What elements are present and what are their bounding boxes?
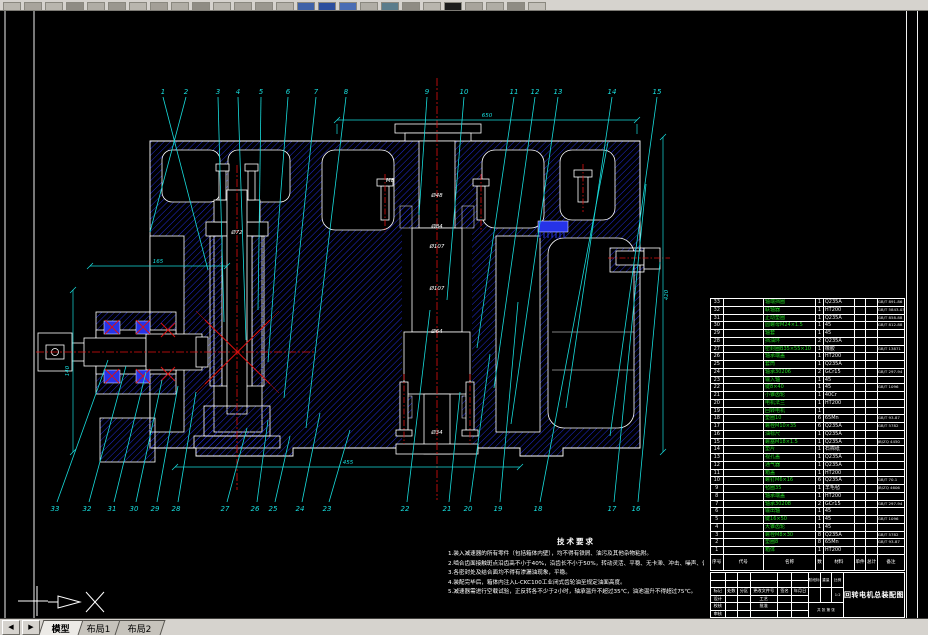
bom-cell: HT200 bbox=[824, 547, 855, 554]
bom-cell bbox=[855, 330, 867, 337]
bom-cell: 29 bbox=[711, 330, 724, 337]
tab-nav: ◀▶ bbox=[2, 620, 40, 635]
bom-cell: GB/T 858-88 bbox=[878, 315, 904, 322]
table-row: 14垫片1石棉纸 bbox=[711, 446, 904, 454]
table-row: 11箱盖1HT200 bbox=[711, 470, 904, 478]
toolbar-icon[interactable] bbox=[213, 2, 231, 10]
table-row: 15螺塞M18×1.51Q235AJB/ZQ 4450 bbox=[711, 439, 904, 447]
titleblock-cell bbox=[726, 596, 739, 603]
bom-cell: 19 bbox=[711, 408, 724, 415]
bom-cell: 密封圈B35×55×10 bbox=[764, 346, 816, 353]
toolbar-icon[interactable] bbox=[297, 2, 315, 10]
bom-cell: 1 bbox=[816, 392, 824, 399]
svg-text:15: 15 bbox=[653, 88, 662, 96]
toolbar-icon[interactable] bbox=[276, 2, 294, 10]
bom-cell bbox=[724, 485, 765, 492]
toolbar-icon[interactable] bbox=[528, 2, 546, 10]
titleblock-cell bbox=[778, 611, 793, 618]
toolbar-icon[interactable] bbox=[255, 2, 273, 10]
toolbar[interactable] bbox=[0, 0, 928, 11]
bom-cell bbox=[855, 346, 867, 353]
bom-cell bbox=[878, 470, 904, 477]
bom-cell bbox=[855, 431, 867, 438]
bom-header-cell: 名称 bbox=[764, 555, 816, 570]
title-block: 标记处数分区更改文件号签名年月日设计工艺校核批准审核 阶段标记 重量 比例 1:… bbox=[710, 572, 905, 618]
bom-cell bbox=[724, 547, 765, 554]
tab-label: 模型 bbox=[52, 622, 70, 635]
bom-cell bbox=[724, 501, 765, 508]
bom-cell: 垫圈8 bbox=[764, 539, 816, 546]
bom-cell: Q235A bbox=[824, 454, 855, 461]
bom-cell: 21 bbox=[711, 392, 724, 399]
bom-table: 33轴端挡圈1Q235AGB/T 891-8632联轴器1HT200GB/T 5… bbox=[710, 298, 905, 571]
bom-cell bbox=[866, 384, 878, 391]
titleblock-cell bbox=[726, 603, 739, 610]
svg-text:455: 455 bbox=[343, 460, 354, 466]
bom-cell: 28 bbox=[711, 338, 724, 345]
bom-cell bbox=[855, 547, 867, 554]
bom-cell: 7 bbox=[711, 501, 724, 508]
bom-cell bbox=[878, 454, 904, 461]
bom-cell: 键16×50 bbox=[764, 516, 816, 523]
titleblock-cell bbox=[711, 581, 726, 588]
table-row: 2垫圈8865MnGB/T 93-87 bbox=[711, 539, 904, 547]
titleblock-cell bbox=[792, 603, 807, 610]
table-row: 3螺栓M8×308Q235AGB/T 5782 bbox=[711, 532, 904, 540]
bom-cell: GB/T 297-94 bbox=[878, 369, 904, 376]
table-row: 7轴承302082GCr15GB/T 297-94 bbox=[711, 501, 904, 509]
tab-label: 布局1 bbox=[87, 622, 111, 635]
bom-cell: 2 bbox=[816, 369, 824, 376]
table-row: 8轴承端盖1HT200 bbox=[711, 493, 904, 501]
bom-cell bbox=[866, 547, 878, 554]
bom-body: 33轴端挡圈1Q235AGB/T 891-8632联轴器1HT200GB/T 5… bbox=[711, 299, 904, 555]
tech-notes-title: 技术要求 bbox=[448, 536, 704, 547]
bom-header-cell: 备注 bbox=[878, 555, 904, 570]
tab-label: 布局2 bbox=[128, 622, 152, 635]
bom-cell: 轴承端盖 bbox=[764, 353, 816, 360]
bom-header-cell: 代号 bbox=[724, 555, 765, 570]
bom-cell bbox=[855, 353, 867, 360]
bom-cell bbox=[724, 524, 765, 531]
tab-nav-button[interactable]: ◀ bbox=[2, 620, 20, 635]
table-row: 10螺钉M6×166Q235AGB/T 70.1 bbox=[711, 477, 904, 485]
titleblock-cell: 处数 bbox=[726, 588, 739, 595]
bom-cell bbox=[855, 462, 867, 469]
bom-cell: 40Cr bbox=[824, 392, 855, 399]
svg-text:29: 29 bbox=[151, 505, 160, 513]
bom-cell: 螺栓M8×30 bbox=[764, 532, 816, 539]
bom-cell: Q235A bbox=[824, 423, 855, 430]
svg-text:9: 9 bbox=[425, 88, 430, 96]
tab-布局2[interactable]: 布局2 bbox=[114, 620, 165, 635]
bom-cell bbox=[724, 346, 765, 353]
tab-nav-button[interactable]: ▶ bbox=[22, 620, 40, 635]
bom-cell: 11 bbox=[711, 470, 724, 477]
titleblock-cell bbox=[738, 581, 751, 588]
bom-cell: 30 bbox=[711, 322, 724, 329]
bom-cell: 14 bbox=[711, 446, 724, 453]
bom-cell bbox=[855, 307, 867, 314]
bom-cell: 螺塞M18×1.5 bbox=[764, 439, 816, 446]
titleblock-cell bbox=[751, 573, 778, 580]
bom-cell: 1 bbox=[816, 439, 824, 446]
bom-cell bbox=[866, 415, 878, 422]
bom-cell: HT200 bbox=[824, 400, 855, 407]
bom-cell bbox=[855, 361, 867, 368]
note-line: 4.装配完毕后，箱体内注入L-CKC100工业闭式齿轮油至规定油面高度。 bbox=[448, 579, 704, 589]
table-row: 21小锥齿轮140Cr bbox=[711, 392, 904, 400]
bom-cell bbox=[724, 400, 765, 407]
bom-cell: GCr15 bbox=[824, 369, 855, 376]
toolbar-icon[interactable] bbox=[507, 2, 525, 10]
bom-cell: Q235A bbox=[824, 532, 855, 539]
bom-cell: 1 bbox=[816, 508, 824, 515]
bom-cell: 20 bbox=[711, 400, 724, 407]
svg-text:12: 12 bbox=[531, 88, 540, 96]
bom-cell: 大锥齿轮 bbox=[764, 524, 816, 531]
tab-strip: 模型布局1布局2 bbox=[46, 619, 162, 635]
svg-text:20: 20 bbox=[464, 505, 473, 513]
bom-cell: 轴套 bbox=[764, 330, 816, 337]
svg-text:650: 650 bbox=[482, 113, 493, 119]
table-row: 19回转电机1 bbox=[711, 408, 904, 416]
titleblock-cell bbox=[751, 611, 778, 618]
titleblock-cell bbox=[726, 611, 739, 618]
toolbar-icon[interactable] bbox=[318, 2, 336, 10]
bom-cell: 1 bbox=[816, 330, 824, 337]
table-row: 12通气器1Q235A bbox=[711, 462, 904, 470]
bom-cell bbox=[724, 508, 765, 515]
bom-cell: 8 bbox=[711, 493, 724, 500]
titleblock-cell bbox=[792, 581, 807, 588]
sheet-count: 共 张 第 张 bbox=[809, 603, 843, 617]
bom-cell: Q235A bbox=[824, 462, 855, 469]
table-row: 1箱体1HT200 bbox=[711, 547, 904, 555]
table-row: 18垫圈10665MnGB/T 93-87 bbox=[711, 415, 904, 423]
bom-cell bbox=[878, 361, 904, 368]
bom-cell bbox=[866, 346, 878, 353]
bom-cell: GB/T 1096 bbox=[878, 384, 904, 391]
titleblock-cell: 工艺 bbox=[751, 596, 778, 603]
table-row: 31止动垫圈1Q235AGB/T 858-88 bbox=[711, 315, 904, 323]
bom-cell: Q235A bbox=[824, 338, 855, 345]
bom-cell bbox=[866, 361, 878, 368]
bom-cell bbox=[866, 470, 878, 477]
titleblock-cell bbox=[792, 573, 807, 580]
svg-text:1: 1 bbox=[161, 88, 165, 96]
bom-cell: Q235A bbox=[824, 439, 855, 446]
bom-cell: 轴端挡圈 bbox=[764, 299, 816, 306]
bom-cell: 轴承30206 bbox=[764, 369, 816, 376]
toolbar-icon[interactable] bbox=[150, 2, 168, 10]
bom-cell bbox=[866, 477, 878, 484]
titleblock-cell: 设计 bbox=[711, 596, 726, 603]
svg-text:22: 22 bbox=[401, 505, 410, 513]
bom-cell bbox=[878, 462, 904, 469]
bom-cell: 箱盖 bbox=[764, 470, 816, 477]
bom-cell: GB/T 93-87 bbox=[878, 539, 904, 546]
titleblock-cell: 更改文件号 bbox=[751, 588, 778, 595]
bom-header: 序号代号名称数量材料单件总计备注 bbox=[711, 555, 904, 570]
bom-cell: 视孔盖 bbox=[764, 454, 816, 461]
scale-label: 比例 bbox=[832, 573, 843, 587]
layout-tabbar: ◀▶ 模型布局1布局2 bbox=[0, 618, 928, 635]
bom-cell: 45 bbox=[824, 516, 855, 523]
bom-cell bbox=[866, 532, 878, 539]
bom-cell: Q235A bbox=[824, 431, 855, 438]
bom-cell bbox=[855, 501, 867, 508]
toolbar-icon[interactable] bbox=[171, 2, 189, 10]
note-line: 5.减速器需进行空载试验，正反转各不少于2小时，轴承温升不超过35℃，油池温升不… bbox=[448, 588, 704, 598]
svg-text:17: 17 bbox=[608, 505, 617, 513]
bom-cell: 5 bbox=[711, 516, 724, 523]
titleblock-cell bbox=[792, 596, 807, 603]
bom-cell bbox=[866, 431, 878, 438]
bom-cell: 45 bbox=[824, 322, 855, 329]
table-row: 5键16×50145GB/T 1096 bbox=[711, 516, 904, 524]
bom-cell: 8 bbox=[816, 539, 824, 546]
bom-cell bbox=[724, 477, 765, 484]
bom-cell bbox=[724, 539, 765, 546]
bom-cell bbox=[866, 439, 878, 446]
bom-cell: 键8×40 bbox=[764, 384, 816, 391]
toolbar-icon[interactable] bbox=[486, 2, 504, 10]
bom-cell: 6 bbox=[816, 423, 824, 430]
bom-cell: 24 bbox=[711, 369, 724, 376]
bom-cell: 1 bbox=[816, 346, 824, 353]
titleblock-cell bbox=[792, 611, 807, 618]
toolbar-icon[interactable] bbox=[3, 2, 21, 10]
tech-notes-lines: 1.装入减速器的所有零件（包括箱体内壁），均不得有铁屑、油污及其他杂物粘附。2.… bbox=[448, 550, 704, 598]
bom-cell: 箱体 bbox=[764, 547, 816, 554]
toolbar-icon[interactable] bbox=[360, 2, 378, 10]
svg-text:140: 140 bbox=[65, 365, 71, 376]
bom-cell bbox=[855, 423, 867, 430]
svg-text:23: 23 bbox=[323, 505, 332, 513]
svg-text:6: 6 bbox=[286, 88, 291, 96]
note-line: 1.装入减速器的所有零件（包括箱体内壁），均不得有铁屑、油污及其他杂物粘附。 bbox=[448, 550, 704, 560]
bom-cell: 3 bbox=[711, 532, 724, 539]
gearbox-housing bbox=[100, 141, 644, 462]
toolbar-icon[interactable] bbox=[87, 2, 105, 10]
bom-cell bbox=[866, 330, 878, 337]
bom-header-cell: 数量 bbox=[816, 555, 824, 570]
bom-cell bbox=[724, 353, 765, 360]
bom-cell bbox=[855, 377, 867, 384]
toolbar-icon[interactable] bbox=[66, 2, 84, 10]
bom-cell bbox=[724, 322, 765, 329]
svg-text:26: 26 bbox=[251, 505, 260, 513]
bom-cell bbox=[866, 454, 878, 461]
svg-text:25: 25 bbox=[269, 505, 278, 513]
titleblock-cell bbox=[711, 573, 726, 580]
bom-cell bbox=[866, 315, 878, 322]
bom-cell bbox=[855, 485, 867, 492]
svg-text:2: 2 bbox=[184, 88, 189, 96]
table-row: 16油标尺1Q235A bbox=[711, 431, 904, 439]
bom-cell: GB/T 13871 bbox=[878, 346, 904, 353]
bom-cell bbox=[866, 338, 878, 345]
bom-cell: 1 bbox=[816, 377, 824, 384]
bom-cell bbox=[855, 493, 867, 500]
bom-cell: 输出轴 bbox=[764, 508, 816, 515]
bom-cell: HT200 bbox=[824, 493, 855, 500]
bom-cell: 输入轴 bbox=[764, 377, 816, 384]
svg-text:165: 165 bbox=[153, 259, 164, 265]
bom-cell bbox=[855, 338, 867, 345]
bom-cell bbox=[724, 439, 765, 446]
toolbar-icon[interactable] bbox=[465, 2, 483, 10]
titleblock-cell: 批准 bbox=[751, 603, 778, 610]
toolbar-icon[interactable] bbox=[129, 2, 147, 10]
toolbar-icon[interactable] bbox=[381, 2, 399, 10]
bom-cell bbox=[878, 493, 904, 500]
bom-cell bbox=[724, 408, 765, 415]
bom-cell bbox=[724, 454, 765, 461]
bom-cell: 螺栓M10×35 bbox=[764, 423, 816, 430]
table-row: 22键8×40145GB/T 1096 bbox=[711, 384, 904, 392]
table-row: 28挡油环2Q235A bbox=[711, 338, 904, 346]
toolbar-icon[interactable] bbox=[423, 2, 441, 10]
svg-text:13: 13 bbox=[554, 88, 563, 96]
bom-cell bbox=[724, 384, 765, 391]
svg-text:420: 420 bbox=[664, 289, 670, 300]
bom-cell: 17 bbox=[711, 423, 724, 430]
bom-cell bbox=[724, 462, 765, 469]
bom-cell bbox=[866, 539, 878, 546]
table-row: 23输入轴145 bbox=[711, 377, 904, 385]
titleblock-cell bbox=[778, 596, 793, 603]
table-row: 26轴承端盖1HT200 bbox=[711, 353, 904, 361]
toolbar-icon[interactable] bbox=[402, 2, 420, 10]
bom-cell: 1 bbox=[816, 493, 824, 500]
titleblock-cell bbox=[751, 581, 778, 588]
toolbar-icon[interactable] bbox=[108, 2, 126, 10]
svg-text:19: 19 bbox=[494, 505, 503, 513]
bom-cell bbox=[866, 485, 878, 492]
bom-cell bbox=[855, 470, 867, 477]
bom-cell bbox=[724, 423, 765, 430]
bom-cell: 1 bbox=[816, 470, 824, 477]
toolbar-icon[interactable] bbox=[45, 2, 63, 10]
svg-text:28: 28 bbox=[172, 505, 181, 513]
table-row: 25套筒1Q235A bbox=[711, 361, 904, 369]
bom-cell bbox=[866, 377, 878, 384]
toolbar-icon[interactable] bbox=[24, 2, 42, 10]
bom-cell: 65Mn bbox=[824, 415, 855, 422]
svg-text:Ø48: Ø48 bbox=[430, 192, 443, 199]
bom-cell: 1 bbox=[816, 322, 824, 329]
bom-cell bbox=[878, 524, 904, 531]
bom-cell bbox=[866, 524, 878, 531]
bom-cell: 65Mn bbox=[824, 539, 855, 546]
bom-header-cell: 总计 bbox=[866, 555, 878, 570]
bom-cell: 1 bbox=[816, 315, 824, 322]
bom-cell: 1 bbox=[816, 454, 824, 461]
bom-cell bbox=[878, 338, 904, 345]
bom-cell: 垫圈10 bbox=[764, 415, 816, 422]
bom-cell bbox=[855, 400, 867, 407]
bom-cell: 1 bbox=[816, 307, 824, 314]
bom-cell bbox=[855, 299, 867, 306]
bom-cell bbox=[878, 353, 904, 360]
bom-cell bbox=[878, 400, 904, 407]
bom-cell: 45 bbox=[824, 508, 855, 515]
bom-cell: 4 bbox=[711, 524, 724, 531]
bom-cell bbox=[724, 315, 765, 322]
svg-text:10: 10 bbox=[460, 88, 469, 96]
bom-cell bbox=[855, 454, 867, 461]
bom-cell bbox=[866, 516, 878, 523]
bom-cell: 1 bbox=[711, 547, 724, 554]
svg-text:3: 3 bbox=[216, 88, 220, 96]
bom-cell bbox=[855, 524, 867, 531]
svg-text:18: 18 bbox=[534, 505, 543, 513]
bom-cell: Q235A bbox=[824, 299, 855, 306]
bom-cell bbox=[855, 384, 867, 391]
bom-cell: 止动垫圈 bbox=[764, 315, 816, 322]
bom-cell: 1 bbox=[816, 485, 824, 492]
bom-header-cell: 单件 bbox=[855, 555, 867, 570]
bom-cell: 1 bbox=[816, 400, 824, 407]
bom-cell bbox=[724, 493, 765, 500]
table-row: 29轴套145 bbox=[711, 330, 904, 338]
toolbar-icon[interactable] bbox=[192, 2, 210, 10]
drawing-title: 回转电机总装配图 bbox=[844, 590, 904, 600]
bom-cell: 33 bbox=[711, 299, 724, 306]
bom-cell bbox=[855, 322, 867, 329]
bom-cell bbox=[855, 315, 867, 322]
svg-text:16: 16 bbox=[632, 505, 641, 513]
bom-cell: HT200 bbox=[824, 470, 855, 477]
bom-cell: 10 bbox=[711, 477, 724, 484]
svg-text:7: 7 bbox=[314, 88, 319, 96]
bom-cell: 2 bbox=[816, 501, 824, 508]
toolbar-icon[interactable] bbox=[339, 2, 357, 10]
titleblock-cell bbox=[778, 581, 793, 588]
bom-cell: GB/T 1096 bbox=[878, 516, 904, 523]
bom-cell: 垫片 bbox=[764, 446, 816, 453]
bom-cell: 1 bbox=[816, 431, 824, 438]
toolbar-icons bbox=[3, 2, 546, 10]
tab-模型[interactable]: 模型 bbox=[39, 620, 84, 635]
bom-cell bbox=[878, 377, 904, 384]
bom-cell: 27 bbox=[711, 346, 724, 353]
titleblock-cell bbox=[726, 581, 739, 588]
bom-cell: 45 bbox=[824, 524, 855, 531]
bom-cell: 1 bbox=[816, 446, 824, 453]
bom-cell: 6 bbox=[816, 477, 824, 484]
bom-cell: 6 bbox=[816, 415, 824, 422]
bom-cell: HT200 bbox=[824, 307, 855, 314]
bom-cell: 1 bbox=[816, 408, 824, 415]
titleblock-cell bbox=[738, 603, 751, 610]
toolbar-icon[interactable] bbox=[444, 2, 462, 10]
bom-cell: 1 bbox=[816, 547, 824, 554]
bom-cell: 23 bbox=[711, 377, 724, 384]
bom-cell: 8 bbox=[816, 532, 824, 539]
bom-cell bbox=[866, 400, 878, 407]
toolbar-icon[interactable] bbox=[234, 2, 252, 10]
tech-notes: 技术要求 1.装入减速器的所有零件（包括箱体内壁），均不得有铁屑、油污及其他杂物… bbox=[448, 536, 704, 598]
bom-cell bbox=[724, 392, 765, 399]
titleblock-mid: 阶段标记 重量 比例 1:2 共 张 第 张 bbox=[809, 573, 844, 617]
svg-text:24: 24 bbox=[296, 505, 305, 513]
bom-cell: 22 bbox=[711, 384, 724, 391]
svg-text:Ø64: Ø64 bbox=[430, 328, 443, 335]
bom-cell: Q235A bbox=[824, 477, 855, 484]
